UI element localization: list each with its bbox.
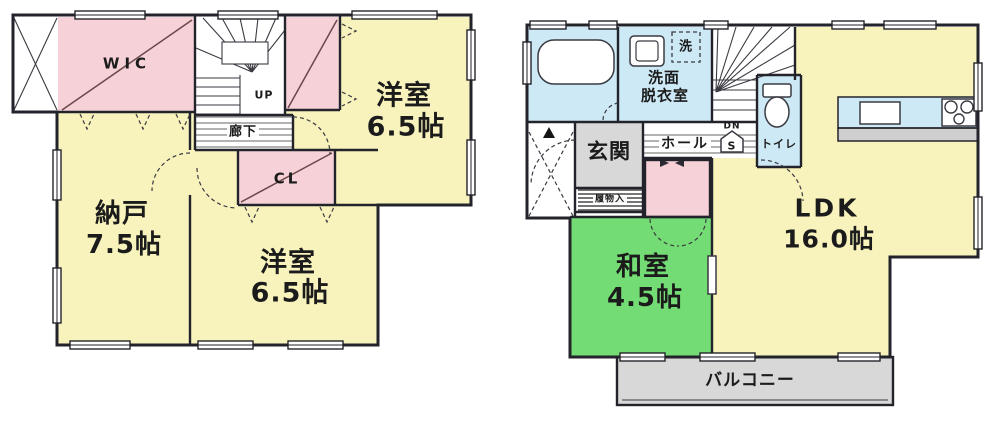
balcony-label: バルコニー <box>705 373 795 390</box>
sink-icon <box>630 36 664 66</box>
washitsu-sliding-door <box>708 256 716 294</box>
bedroom-top-name: 洋室 <box>376 83 432 110</box>
bedroom-bottom-size: 6.5帖 <box>251 280 330 307</box>
storage-room-size: 7.5帖 <box>86 232 162 258</box>
hall-label: ホール <box>659 137 711 151</box>
japanese-room-size: 4.5帖 <box>607 285 683 311</box>
closet-cl-label: CL <box>274 172 301 187</box>
bathtub-icon <box>538 40 614 84</box>
entrance-label: 玄関 <box>587 142 631 163</box>
floor1-plan <box>523 21 982 405</box>
corridor-label: 廊下 <box>227 126 259 139</box>
kitchen-sink-icon <box>860 102 900 124</box>
floor-plan-canvas: WIC UP 廊下 CL 納戸 7.5帖 洋室 6.5帖 洋室 6.5帖 洗面 … <box>0 0 1000 421</box>
bedroom-bottom-name: 洋室 <box>260 250 316 277</box>
washroom-label-line2: 脱衣室 <box>641 89 689 104</box>
ldk-name: LDK <box>794 196 859 221</box>
stairs-up-label: UP <box>255 90 274 101</box>
stairs-down-label: DN <box>723 123 740 132</box>
bedroom-top-size: 6.5帖 <box>367 114 446 141</box>
washroom-label-line1: 洗面 <box>648 71 680 86</box>
japanese-room-name: 和室 <box>616 254 670 280</box>
wic-label: WIC <box>103 57 151 72</box>
toilet-icon <box>763 84 791 127</box>
kitchen-counter <box>838 97 978 141</box>
porch-area <box>527 130 575 218</box>
floor2-plan <box>13 11 475 349</box>
stove-burners-icon <box>942 99 976 126</box>
washer-label: 洗 <box>679 41 693 54</box>
shoe-storage-label: 履物入 <box>593 196 627 205</box>
washitsu-closet <box>645 160 710 217</box>
understairs-storage-label: S <box>728 141 737 152</box>
toilet-label: トイレ <box>761 139 797 150</box>
ldk-size: 16.0帖 <box>783 227 875 252</box>
storage-room-name: 納戸 <box>95 201 149 227</box>
